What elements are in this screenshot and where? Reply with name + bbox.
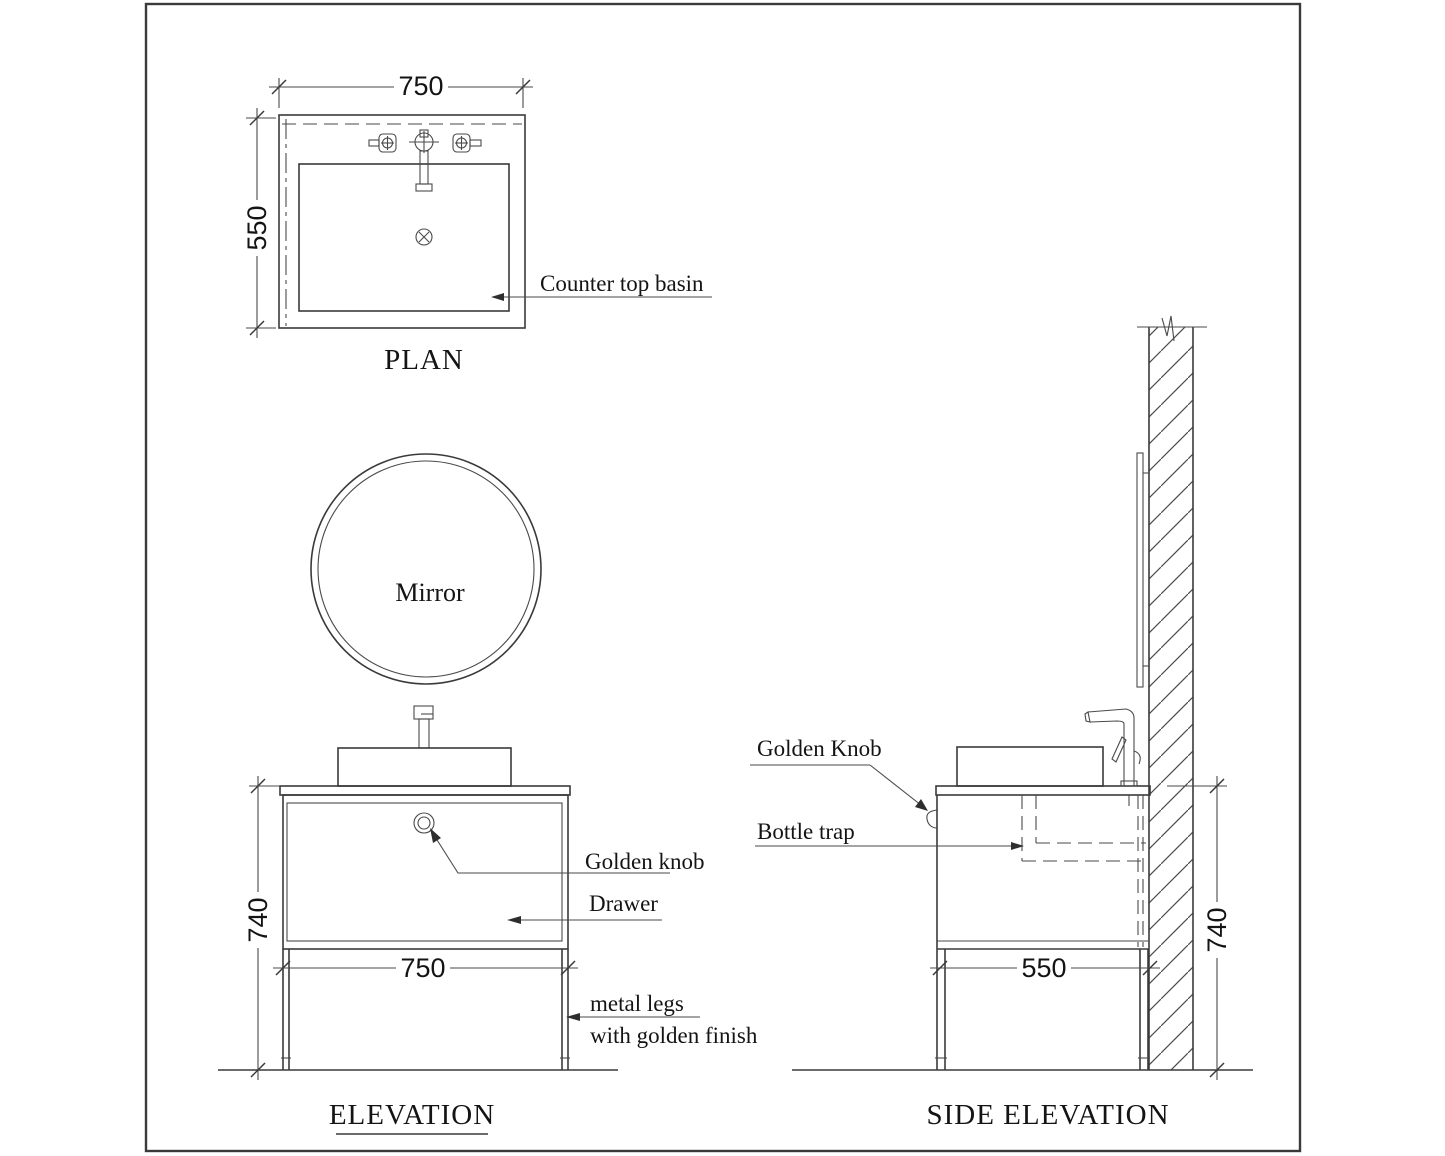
elevation-mirror-inner — [318, 461, 534, 677]
elevation-mirror-outline — [311, 454, 541, 684]
side-mirror — [1137, 453, 1143, 687]
plan-basin-outline — [299, 164, 509, 311]
side-trap-callout: Bottle trap — [755, 819, 1024, 850]
leader-arrow — [915, 799, 928, 811]
elevation-knob-label: Golden knob — [585, 849, 704, 874]
side-knob-label: Golden Knob — [757, 736, 882, 761]
side-elevation-title: SIDE ELEVATION — [926, 1099, 1169, 1131]
plan-faucet-set — [369, 130, 481, 191]
vanity-technical-drawing: 750 550 Counter top basin PLAN Mirror — [0, 0, 1445, 1156]
cad-drawing-page: 750 550 Counter top basin PLAN Mirror — [0, 0, 1445, 1156]
plan-basin-label: Counter top basin — [540, 271, 704, 296]
side-dim-depth-text: 550 — [1021, 953, 1066, 983]
elevation-dim-height: 740 — [243, 776, 280, 1080]
side-dim-height-text: 740 — [1202, 907, 1232, 952]
elevation-faucet — [414, 706, 433, 748]
elevation-title: ELEVATION — [329, 1099, 495, 1131]
plan-spout-tip — [416, 184, 432, 191]
plan-dim-depth: 550 — [242, 108, 276, 338]
elevation-drawer-callout: Drawer — [507, 891, 662, 924]
wall-hatching — [1149, 327, 1193, 1070]
elevation-view: Mirror Golden knob Drawer — [218, 454, 758, 1134]
side-bottle-trap-plumbing — [1022, 795, 1146, 947]
plan-basin-callout: Counter top basin — [491, 271, 712, 301]
elevation-legs-label-line1: metal legs — [590, 991, 684, 1016]
side-basin — [957, 747, 1103, 786]
elevation-cabinet — [283, 795, 568, 949]
elevation-countertop — [280, 786, 570, 795]
elevation-legs-label-line2: with golden finish — [590, 1023, 758, 1048]
elevation-dim-width-text: 750 — [400, 953, 445, 983]
side-elevation-view: 550 740 Golden Knob Bottle trap — [750, 316, 1253, 1131]
elevation-dim-width: 750 — [273, 953, 578, 983]
drawing-border-frame — [146, 4, 1300, 1151]
elevation-knob-inner — [418, 817, 430, 829]
elevation-dim-height-text: 740 — [243, 897, 273, 942]
plan-view: 750 550 Counter top basin PLAN — [242, 71, 712, 376]
leader-arrow — [430, 828, 441, 843]
plan-dim-width-text: 750 — [398, 71, 443, 101]
plan-dim-width: 750 — [269, 71, 533, 108]
elevation-legs-callout: metal legs with golden finish — [566, 991, 758, 1048]
leader-arrow — [491, 293, 504, 301]
leader-arrow — [507, 916, 521, 924]
plan-left-handle-stem — [369, 140, 379, 146]
elevation-basin — [338, 748, 511, 786]
side-dim-depth: 550 — [930, 953, 1160, 983]
side-knob-profile — [927, 810, 937, 828]
plan-dim-depth-text: 550 — [242, 205, 272, 250]
plan-spout-arm — [420, 151, 428, 184]
side-knob-callout: Golden Knob — [750, 736, 928, 811]
side-countertop — [936, 786, 1150, 795]
side-faucet-spout-tip — [1085, 712, 1090, 722]
side-faucet — [1085, 709, 1140, 806]
plan-drain-symbol — [416, 229, 432, 245]
plan-right-handle-stem — [470, 140, 481, 146]
side-trap-label: Bottle trap — [757, 819, 855, 844]
elevation-drawer-label: Drawer — [589, 891, 658, 916]
plan-countertop-outline — [279, 115, 525, 328]
plan-title: PLAN — [384, 344, 464, 376]
side-cabinet — [927, 795, 1149, 949]
elevation-mirror-label: Mirror — [395, 578, 465, 607]
